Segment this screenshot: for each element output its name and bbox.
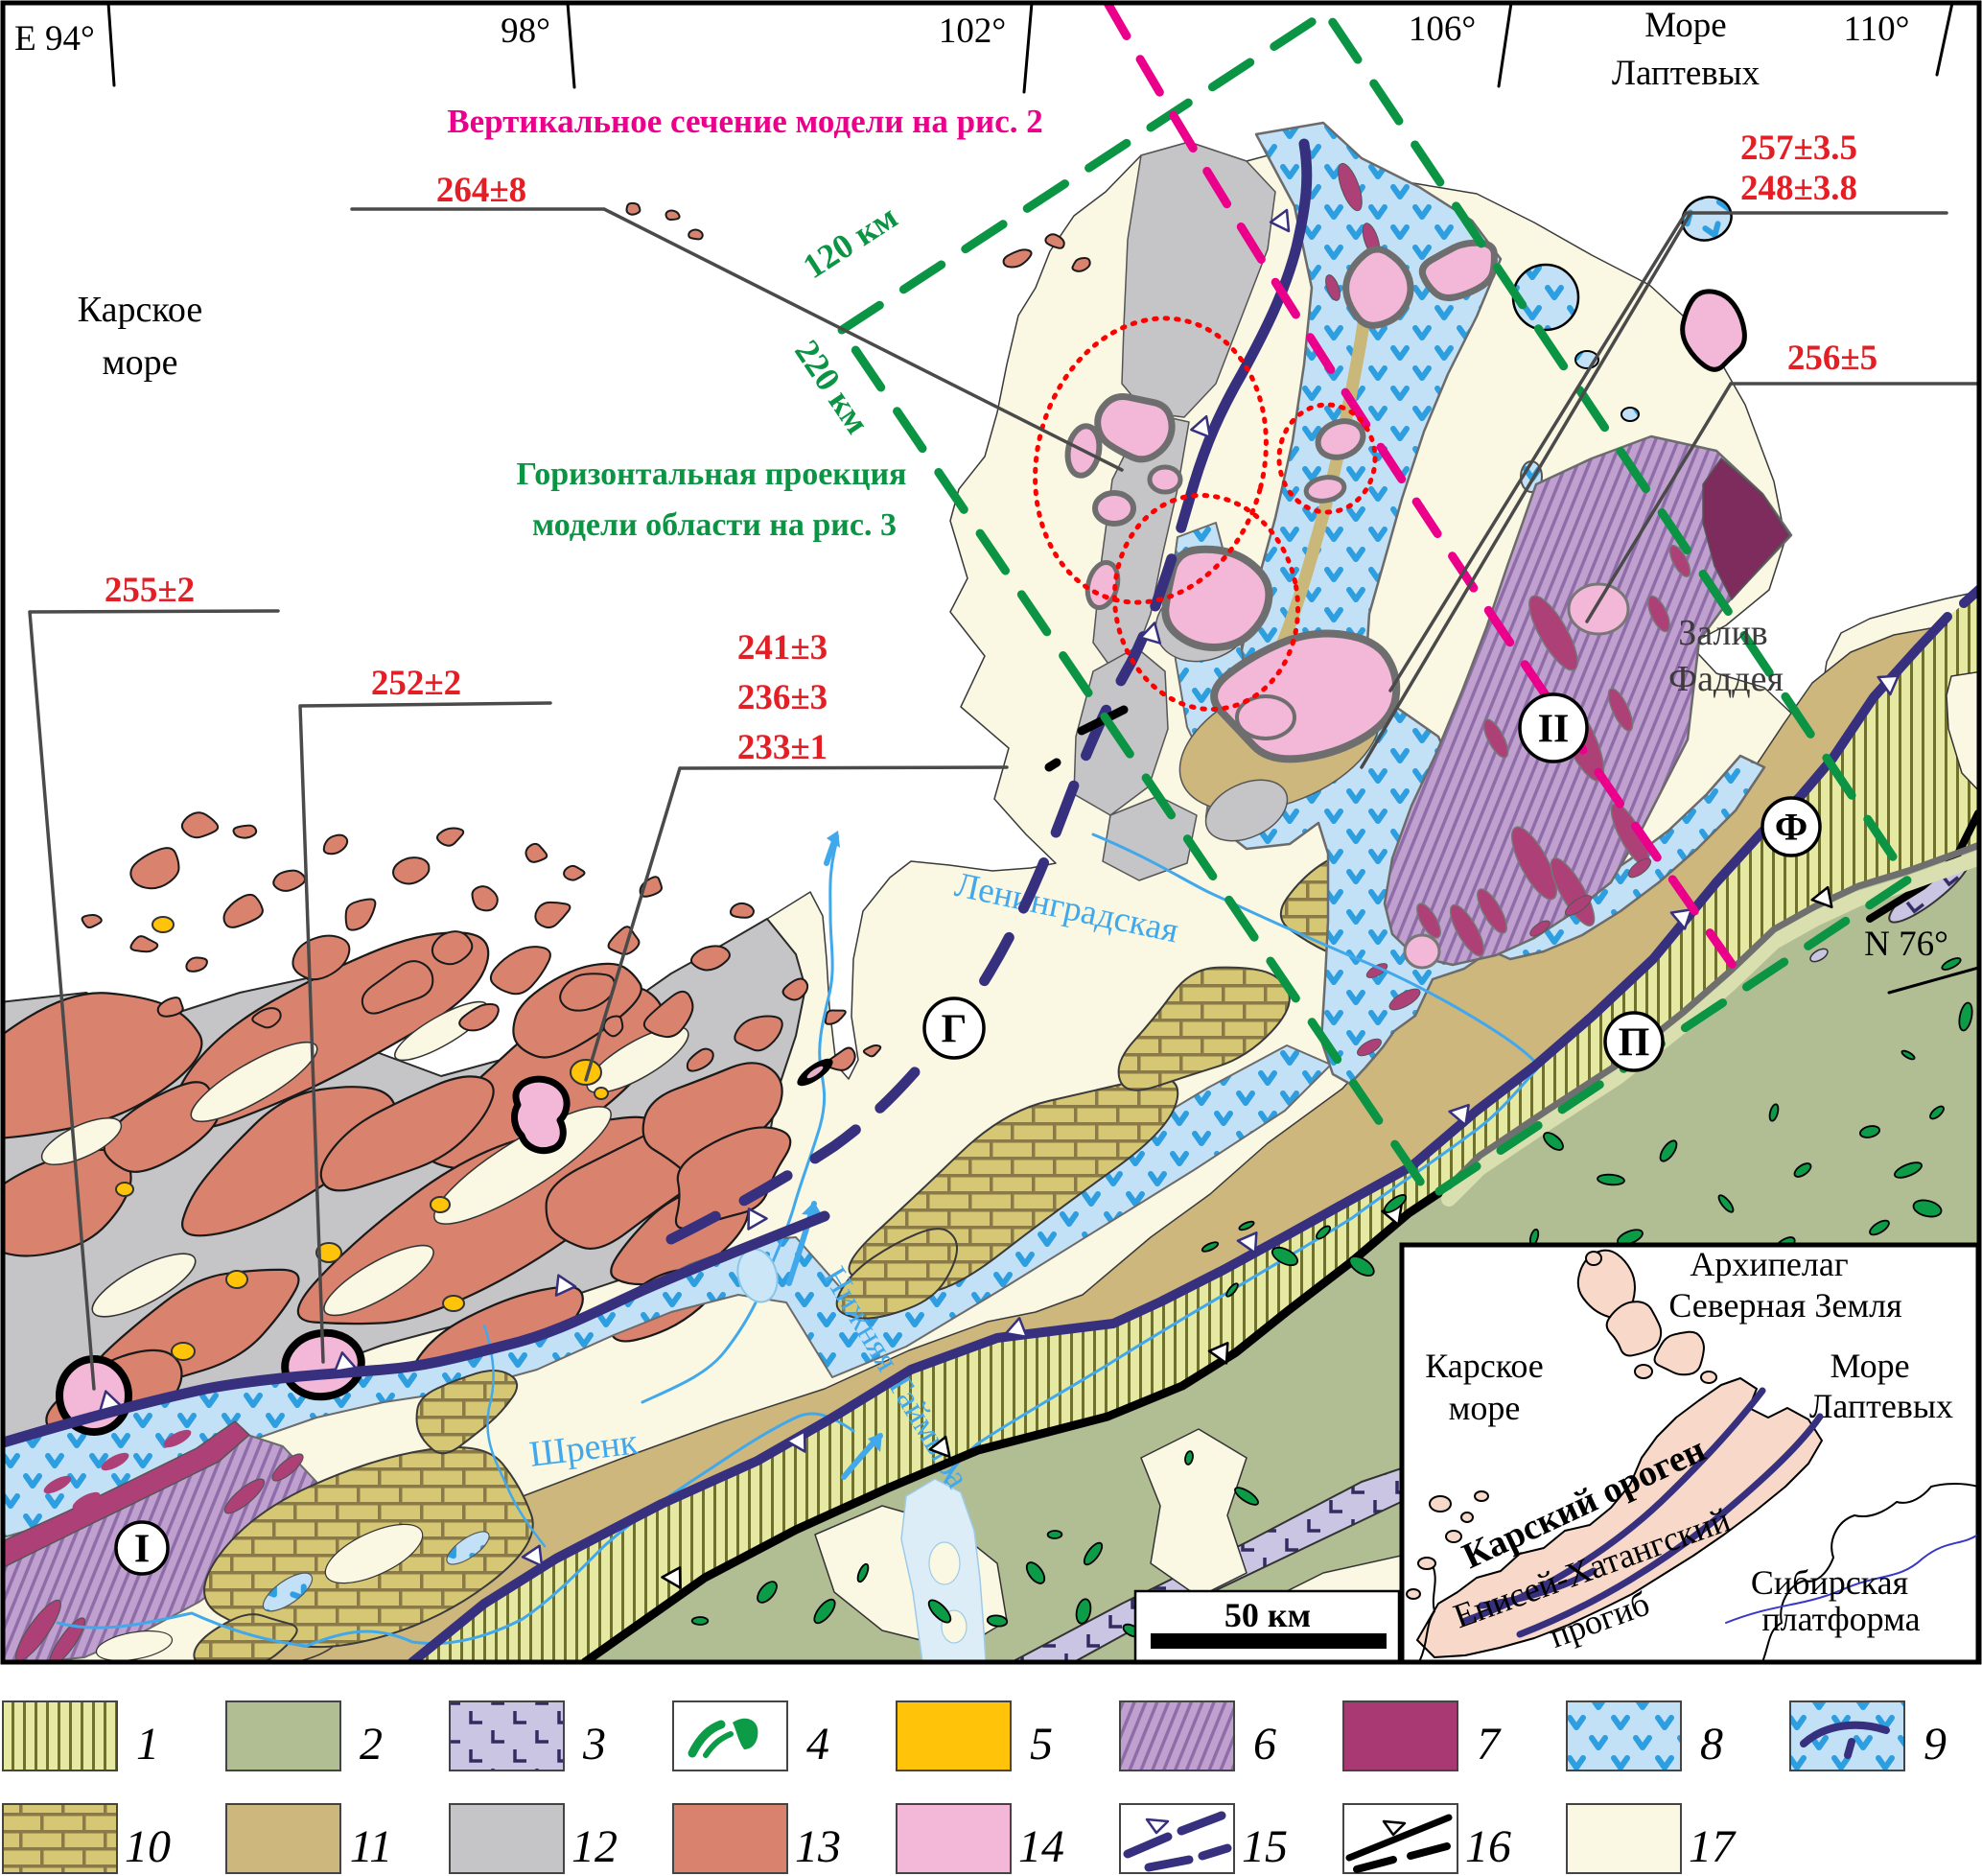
svg-text:2: 2 — [360, 1719, 383, 1770]
svg-text:Море: Море — [1644, 6, 1726, 45]
svg-text:255±2: 255±2 — [105, 571, 195, 610]
svg-text:модели области на рис. 3: модели области на рис. 3 — [532, 507, 897, 543]
svg-text:Море: Море — [1830, 1347, 1909, 1385]
svg-text:10: 10 — [125, 1821, 171, 1872]
svg-text:Залив: Залив — [1678, 613, 1767, 653]
svg-text:платформа: платформа — [1761, 1600, 1920, 1638]
svg-text:14: 14 — [1018, 1821, 1064, 1872]
svg-text:Ф: Ф — [1775, 806, 1807, 849]
svg-text:Карское: Карское — [78, 290, 202, 330]
svg-text:Фаддея: Фаддея — [1668, 659, 1784, 699]
svg-text:13: 13 — [795, 1821, 841, 1872]
svg-text:Лаптевых: Лаптевых — [1612, 54, 1760, 93]
svg-text:17: 17 — [1689, 1821, 1737, 1872]
svg-text:5: 5 — [1030, 1719, 1053, 1770]
svg-text:море: море — [103, 342, 178, 383]
svg-text:4: 4 — [806, 1719, 829, 1770]
svg-text:Лаптевых: Лаптевых — [1809, 1387, 1953, 1425]
svg-text:233±1: 233±1 — [737, 728, 828, 767]
svg-text:7: 7 — [1477, 1719, 1502, 1770]
svg-text:252±2: 252±2 — [371, 664, 461, 703]
svg-text:12: 12 — [571, 1821, 618, 1872]
svg-text:106°: 106° — [1409, 10, 1476, 49]
svg-text:8: 8 — [1700, 1719, 1723, 1770]
svg-text:248±3.8: 248±3.8 — [1740, 169, 1857, 208]
svg-text:3: 3 — [582, 1719, 606, 1770]
svg-text:П: П — [1619, 1020, 1650, 1065]
svg-text:50 км: 50 км — [1224, 1596, 1311, 1634]
svg-text:16: 16 — [1465, 1821, 1511, 1872]
svg-text:Карское: Карское — [1425, 1347, 1544, 1385]
svg-text:241±3: 241±3 — [737, 628, 828, 668]
svg-text:256±5: 256±5 — [1787, 339, 1877, 378]
svg-text:102°: 102° — [939, 12, 1006, 51]
svg-text:9: 9 — [1924, 1719, 1947, 1770]
svg-text:Сибирская: Сибирская — [1751, 1563, 1908, 1602]
svg-text:15: 15 — [1242, 1821, 1288, 1872]
svg-text:1: 1 — [136, 1719, 159, 1770]
svg-text:Г: Г — [942, 1007, 968, 1051]
svg-text:I: I — [134, 1527, 150, 1571]
svg-text:11: 11 — [350, 1821, 392, 1872]
svg-text:Архипелаг: Архипелаг — [1690, 1245, 1848, 1283]
svg-text:Вертикальное сечение модели на: Вертикальное сечение модели на рис. 2 — [447, 103, 1043, 140]
svg-text:E 94°: E 94° — [14, 19, 95, 59]
svg-text:257±3.5: 257±3.5 — [1740, 129, 1857, 168]
svg-text:II: II — [1538, 707, 1570, 751]
svg-text:Горизонтальная проекция: Горизонтальная проекция — [517, 457, 907, 492]
svg-text:N 76°: N 76° — [1864, 925, 1948, 964]
svg-text:264±8: 264±8 — [436, 171, 526, 210]
svg-text:98°: 98° — [501, 12, 550, 51]
svg-text:236±3: 236±3 — [737, 678, 828, 717]
svg-text:Северная Земля: Северная Земля — [1668, 1286, 1901, 1325]
svg-text:6: 6 — [1253, 1719, 1276, 1770]
svg-text:110°: 110° — [1844, 10, 1910, 49]
svg-text:море: море — [1449, 1389, 1521, 1427]
